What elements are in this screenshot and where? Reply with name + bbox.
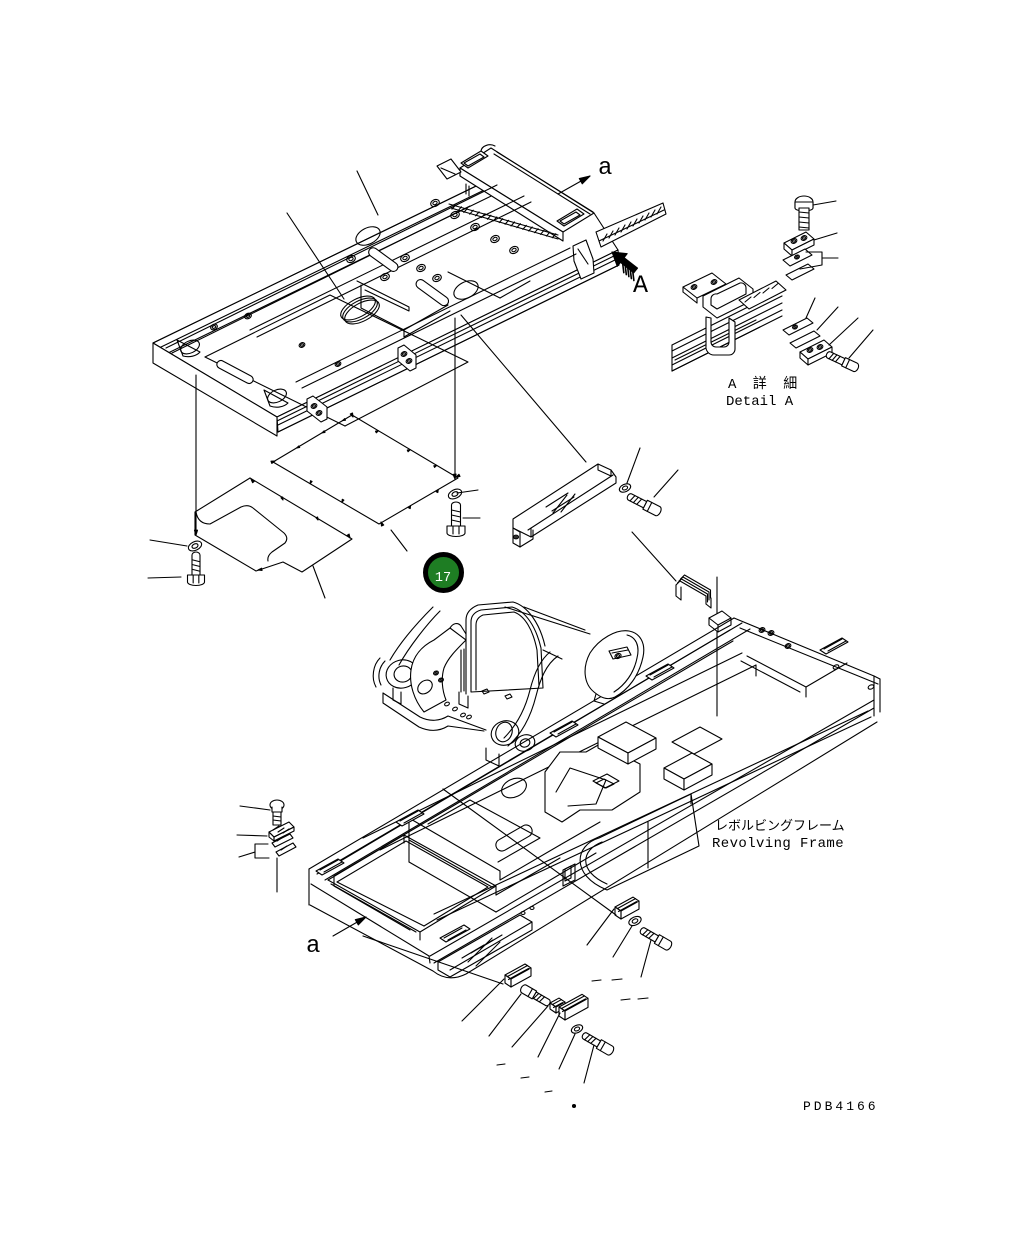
- svg-text:レボルビングフレーム: レボルビングフレーム: [715, 819, 845, 834]
- svg-text:a: a: [598, 155, 612, 182]
- svg-text:A 詳 細: A 詳 細: [728, 376, 801, 393]
- svg-text:Detail A: Detail A: [726, 394, 794, 410]
- svg-text:a: a: [306, 933, 320, 960]
- svg-text:17: 17: [435, 571, 451, 586]
- svg-text:Revolving Frame: Revolving Frame: [712, 836, 844, 852]
- svg-text:PDB4166: PDB4166: [803, 1099, 879, 1114]
- svg-text:A: A: [633, 271, 648, 300]
